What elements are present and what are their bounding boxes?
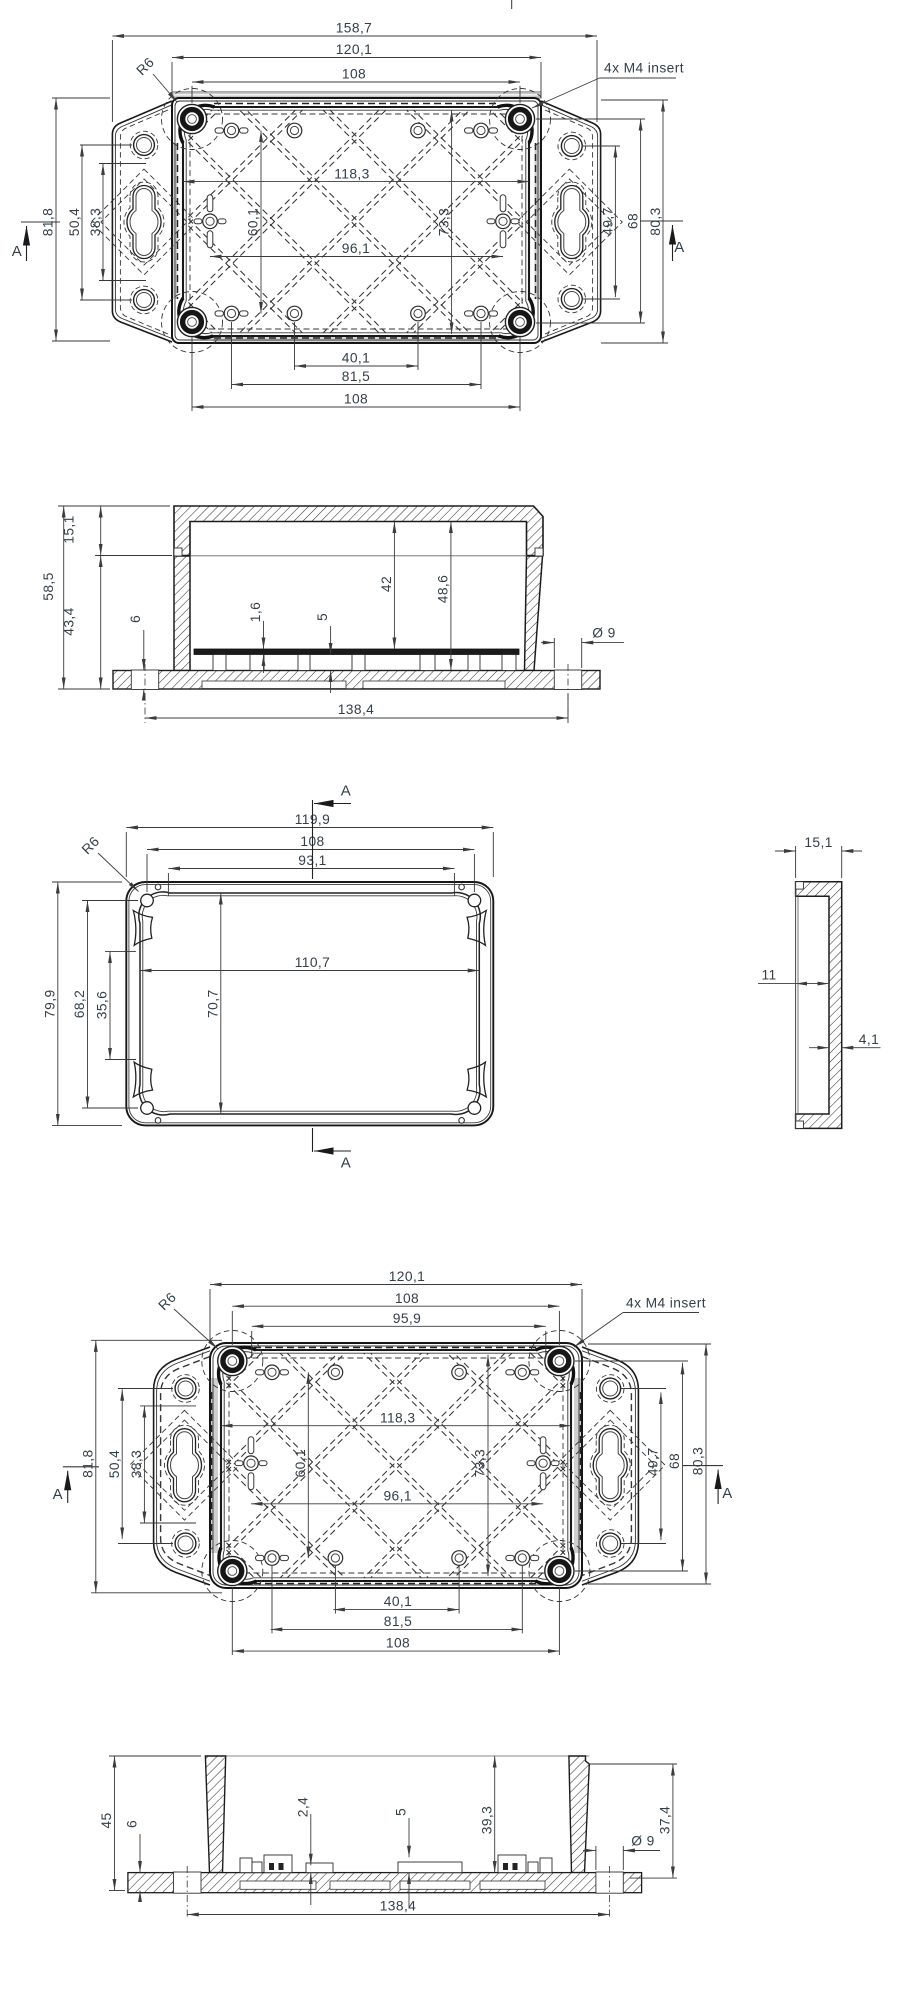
svg-text:5: 5 xyxy=(315,613,330,621)
svg-text:58,5: 58,5 xyxy=(41,572,56,600)
svg-text:70,7: 70,7 xyxy=(205,989,220,1017)
svg-text:68: 68 xyxy=(667,1453,682,1469)
svg-text:Ø 9: Ø 9 xyxy=(592,626,615,641)
svg-text:79,9: 79,9 xyxy=(42,989,57,1017)
svg-text:6: 6 xyxy=(128,615,143,623)
svg-text:38,3: 38,3 xyxy=(129,1450,144,1478)
svg-text:37,4: 37,4 xyxy=(658,1806,673,1834)
svg-text:138,4: 138,4 xyxy=(338,702,375,717)
svg-text:48,6: 48,6 xyxy=(436,575,451,603)
svg-text:81,8: 81,8 xyxy=(80,1449,95,1477)
svg-text:138,4: 138,4 xyxy=(380,1899,417,1914)
svg-text:4x M4 insert: 4x M4 insert xyxy=(626,1295,706,1310)
svg-text:6: 6 xyxy=(125,1820,140,1828)
svg-text:45: 45 xyxy=(99,1812,114,1828)
svg-text:110,7: 110,7 xyxy=(295,955,331,970)
svg-text:49,7: 49,7 xyxy=(646,1448,661,1476)
svg-text:60,1: 60,1 xyxy=(293,1449,308,1477)
svg-text:50,4: 50,4 xyxy=(67,208,82,236)
svg-text:Ø 9: Ø 9 xyxy=(631,1834,654,1849)
svg-text:40,1: 40,1 xyxy=(384,1594,412,1609)
svg-text:4x M4 insert: 4x M4 insert xyxy=(604,61,684,76)
svg-text:A: A xyxy=(12,243,22,260)
svg-text:1,6: 1,6 xyxy=(248,602,263,622)
svg-text:4,1: 4,1 xyxy=(859,1032,879,1047)
svg-text:R6: R6 xyxy=(156,1290,180,1314)
svg-text:108: 108 xyxy=(395,1291,419,1306)
svg-text:A: A xyxy=(53,1486,63,1503)
svg-text:42: 42 xyxy=(379,576,394,592)
svg-text:73,3: 73,3 xyxy=(436,208,451,236)
svg-text:50,4: 50,4 xyxy=(107,1450,122,1478)
svg-text:60,1: 60,1 xyxy=(246,208,261,236)
svg-text:108: 108 xyxy=(386,1636,410,1651)
svg-text:120,1: 120,1 xyxy=(336,42,373,57)
svg-text:81,5: 81,5 xyxy=(384,1614,412,1629)
svg-text:A: A xyxy=(341,1154,351,1171)
svg-text:A: A xyxy=(341,782,351,799)
svg-text:108: 108 xyxy=(342,67,366,82)
svg-text:A: A xyxy=(674,239,684,256)
svg-text:96,1: 96,1 xyxy=(383,1488,411,1503)
svg-text:39,3: 39,3 xyxy=(479,1806,494,1834)
svg-text:43,4: 43,4 xyxy=(62,607,77,635)
svg-text:15,1: 15,1 xyxy=(62,515,77,543)
svg-text:11: 11 xyxy=(761,968,776,983)
svg-text:108: 108 xyxy=(344,392,368,407)
svg-text:95,9: 95,9 xyxy=(393,1311,421,1326)
svg-text:68: 68 xyxy=(626,213,641,229)
svg-text:118,3: 118,3 xyxy=(380,1410,416,1425)
svg-text:38,3: 38,3 xyxy=(88,208,103,236)
svg-text:35,6: 35,6 xyxy=(95,991,110,1019)
svg-text:2,4: 2,4 xyxy=(295,1797,310,1817)
svg-text:73,3: 73,3 xyxy=(473,1449,488,1477)
svg-text:15,1: 15,1 xyxy=(804,835,832,850)
svg-text:81,5: 81,5 xyxy=(342,369,370,384)
svg-text:49,7: 49,7 xyxy=(600,207,615,235)
svg-text:158,7: 158,7 xyxy=(336,21,373,36)
svg-text:68,2: 68,2 xyxy=(72,990,87,1018)
svg-text:118,3: 118,3 xyxy=(334,167,370,182)
svg-text:40,1: 40,1 xyxy=(342,351,370,366)
svg-text:A: A xyxy=(722,1485,732,1502)
svg-text:80,3: 80,3 xyxy=(691,1447,706,1475)
svg-text:120,1: 120,1 xyxy=(389,1269,426,1284)
svg-text:96,1: 96,1 xyxy=(342,241,370,256)
svg-text:5: 5 xyxy=(394,1808,409,1816)
